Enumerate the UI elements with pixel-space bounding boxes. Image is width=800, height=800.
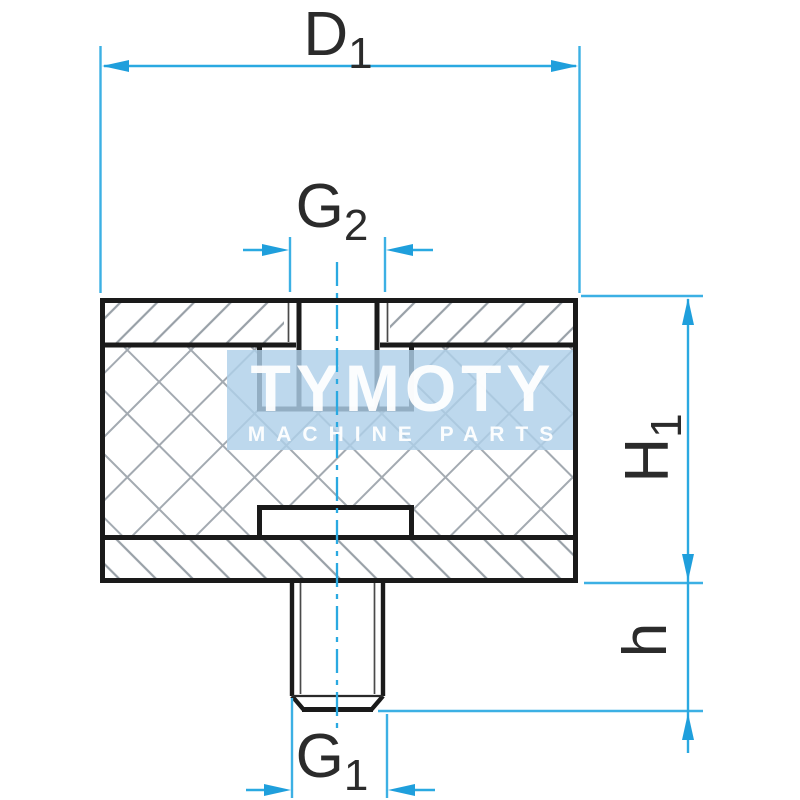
h1-arrow-bottom [682,554,694,581]
technical-drawing-svg: TYMOTY MACHINE PARTS D1 G2 H1 h G1 [0,0,800,800]
g1-arrow-left [264,784,291,796]
d1-label: D1 [303,0,372,78]
h1-label: H1 [613,413,691,482]
threaded-stud [290,583,385,710]
h-arrow-bottom [682,713,694,740]
watermark-tagline: MACHINE PARTS [248,423,564,446]
h-label: h [611,623,680,657]
g2-arrow-left [262,244,289,256]
g2-arrow-right [386,244,413,256]
g2-label: G2 [296,172,369,250]
g1-arrow-right [388,784,415,796]
d1-arrow-right [551,60,578,72]
watermark-brand: TYMOTY [251,351,556,425]
d1-extension-lines [101,46,580,293]
bottom-plate-hatch [104,540,575,581]
dimension-g1: G1 [246,698,435,800]
g1-label: G1 [296,722,369,800]
h1-arrow-top [682,298,694,325]
dimension-d1: D1 [101,0,580,293]
d1-arrow-left [102,60,129,72]
stud-fill [290,583,385,710]
watermark: TYMOTY MACHINE PARTS [227,350,573,450]
drawing-canvas: TYMOTY MACHINE PARTS D1 G2 H1 h G1 [0,0,800,800]
